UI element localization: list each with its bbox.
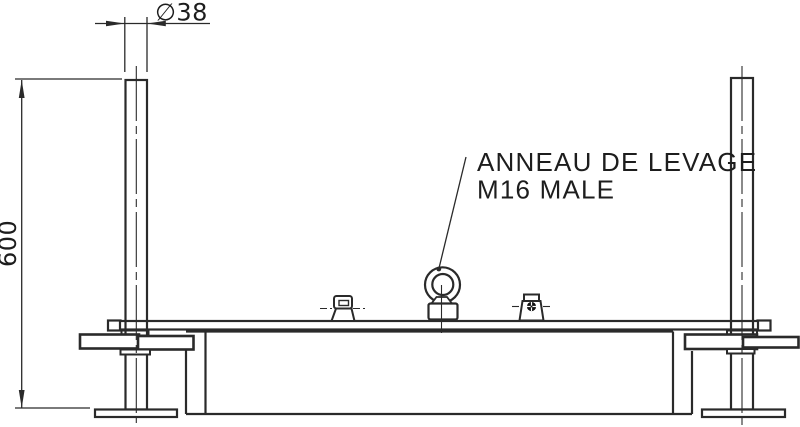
left-post-collar (121, 350, 151, 355)
top-plate-left-tab (108, 321, 121, 331)
leader-dot (436, 267, 441, 272)
eye-bolt-base (429, 304, 458, 320)
arrowhead (106, 21, 125, 27)
right-post-collar (727, 349, 755, 354)
top-plate-right-tab (758, 321, 771, 331)
eye-bolt-inner-ring (432, 274, 453, 295)
right-foot-plate (702, 410, 785, 418)
height-dimension: 600 (0, 79, 122, 408)
diameter-dimension-label: ∅38 (155, 0, 208, 27)
left-stud (320, 296, 366, 321)
callout-text-line1: ANNEAU DE LEVAGE (477, 147, 757, 177)
left-stud-body (332, 309, 355, 322)
callout-text-line2: M16 MALE (477, 175, 615, 205)
technical-drawing-canvas: ∅38 600 ANNEAU DE LEVAGE M16 MALE (0, 0, 800, 427)
right-stud (512, 295, 552, 321)
lifting-beam-drawing: ∅38 600 ANNEAU DE LEVAGE M16 MALE (0, 0, 800, 427)
lifting-ring-callout: ANNEAU DE LEVAGE M16 MALE (436, 147, 757, 271)
diameter-dimension: ∅38 (95, 0, 210, 72)
arrowhead (19, 390, 25, 408)
leader-line (439, 157, 466, 269)
height-dimension-label: 600 (0, 220, 22, 267)
top-plate (108, 321, 771, 331)
arrowhead (19, 80, 25, 98)
left-stud-head (334, 296, 352, 309)
main-beam-box (186, 332, 692, 415)
